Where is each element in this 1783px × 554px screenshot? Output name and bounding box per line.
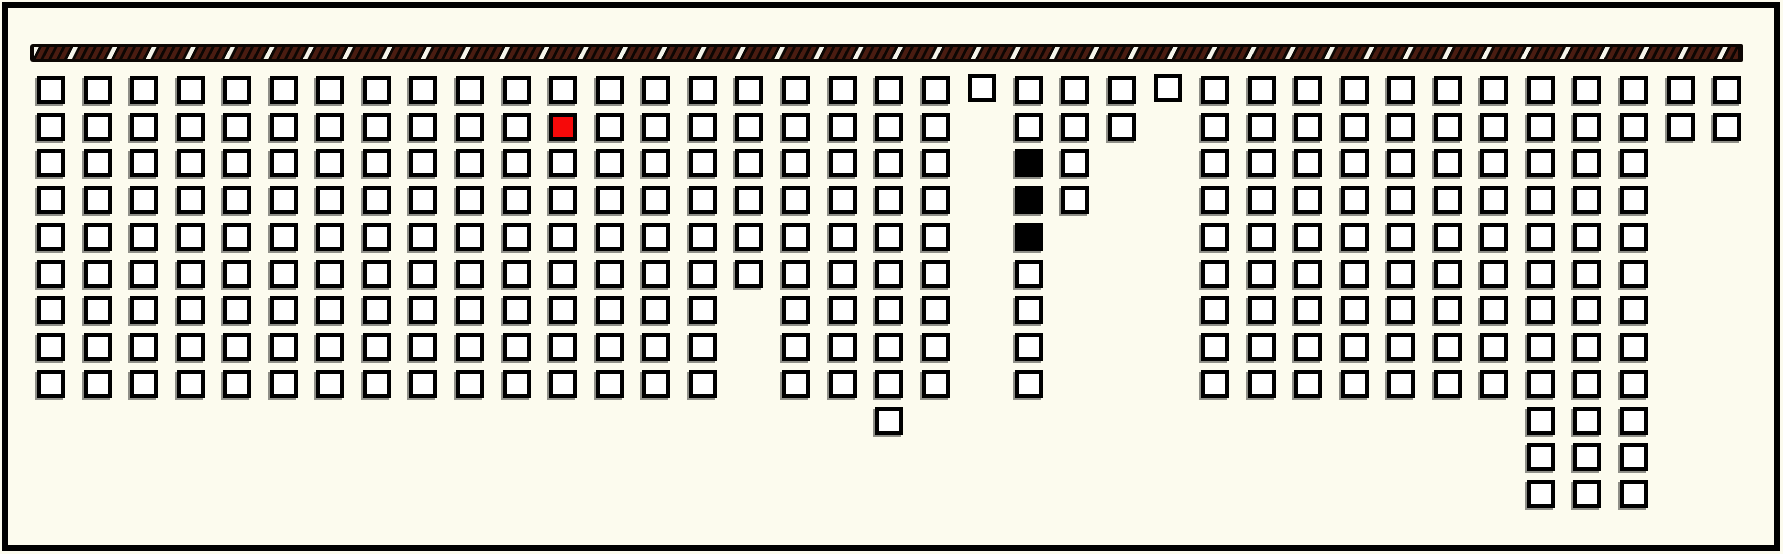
seat-available[interactable] [1620,186,1648,214]
seat-available[interactable] [37,370,65,398]
seat-available[interactable] [130,260,158,288]
seat-available[interactable] [503,260,531,288]
seat-available[interactable] [223,149,251,177]
seat-available[interactable] [1201,223,1229,251]
seat-available[interactable] [1620,296,1648,324]
seat-available[interactable] [84,260,112,288]
seat-available[interactable] [596,370,624,398]
seat-available[interactable] [1527,260,1555,288]
seat-available[interactable] [223,76,251,104]
seat-available[interactable] [782,113,810,141]
seat-available[interactable] [503,76,531,104]
seat-available[interactable] [596,149,624,177]
seat-available[interactable] [596,223,624,251]
seat-available[interactable] [875,296,903,324]
seat-available[interactable] [1341,260,1369,288]
seat-available[interactable] [549,260,577,288]
seat-available[interactable] [1201,333,1229,361]
seat-available[interactable] [223,113,251,141]
seat-available[interactable] [270,296,298,324]
seat-available[interactable] [130,370,158,398]
seat-available[interactable] [1480,260,1508,288]
seat-available[interactable] [1387,76,1415,104]
seat-available[interactable] [177,333,205,361]
seat-available[interactable] [1294,296,1322,324]
seat-available[interactable] [829,333,857,361]
seat-available[interactable] [1480,296,1508,324]
seat-available[interactable] [1620,223,1648,251]
seat-available[interactable] [223,186,251,214]
seat-available[interactable] [875,76,903,104]
seat-available[interactable] [37,333,65,361]
seat-available[interactable] [1061,186,1089,214]
seat-available[interactable] [37,113,65,141]
seat-available[interactable] [363,149,391,177]
seat-available[interactable] [1387,113,1415,141]
seat-available[interactable] [130,223,158,251]
seat-available[interactable] [1387,296,1415,324]
seat-available[interactable] [1620,370,1648,398]
seat-available[interactable] [1527,407,1555,435]
seat-available[interactable] [1248,370,1276,398]
seat-available[interactable] [1527,370,1555,398]
seat-available[interactable] [130,113,158,141]
seat-available[interactable] [1294,186,1322,214]
seat-available[interactable] [1713,76,1741,104]
seat-available[interactable] [223,333,251,361]
seat-available[interactable] [1294,149,1322,177]
seat-available[interactable] [1061,149,1089,177]
seat-available[interactable] [782,149,810,177]
seat-available[interactable] [316,149,344,177]
seat-available[interactable] [1294,223,1322,251]
seat-available[interactable] [37,186,65,214]
seat-available[interactable] [1341,370,1369,398]
seat-available[interactable] [1248,296,1276,324]
seat-available[interactable] [1248,149,1276,177]
seat-available[interactable] [642,223,670,251]
seat-available[interactable] [1248,113,1276,141]
seat-available[interactable] [316,223,344,251]
seat-available[interactable] [1248,333,1276,361]
seat-available[interactable] [1480,113,1508,141]
seat-available[interactable] [177,149,205,177]
seat-available[interactable] [1620,480,1648,508]
seat-available[interactable] [503,186,531,214]
seat-available[interactable] [409,333,437,361]
seat-available[interactable] [1620,149,1648,177]
seat-available[interactable] [922,76,950,104]
seat-available[interactable] [1527,149,1555,177]
seat-available[interactable] [829,370,857,398]
seat-available[interactable] [875,333,903,361]
seat-available[interactable] [1527,443,1555,471]
seat-selected[interactable] [549,113,577,141]
seat-available[interactable] [829,113,857,141]
seat-available[interactable] [875,186,903,214]
seat-available[interactable] [270,149,298,177]
seat-available[interactable] [456,113,484,141]
seat-available[interactable] [782,370,810,398]
seat-available[interactable] [1201,76,1229,104]
seat-available[interactable] [223,370,251,398]
seat-available[interactable] [1480,186,1508,214]
seat-available[interactable] [968,74,996,102]
seat-available[interactable] [1480,223,1508,251]
seat-map-canvas [0,0,1783,554]
seat-available[interactable] [223,223,251,251]
seat-available[interactable] [1480,76,1508,104]
seat-available[interactable] [1480,370,1508,398]
seat-available[interactable] [549,370,577,398]
seat-available[interactable] [84,370,112,398]
seat-available[interactable] [37,76,65,104]
seat-available[interactable] [875,407,903,435]
seat-available[interactable] [1387,186,1415,214]
seat-available[interactable] [363,186,391,214]
seat-available[interactable] [1201,370,1229,398]
seat-available[interactable] [177,186,205,214]
seat-available[interactable] [270,370,298,398]
seat-available[interactable] [829,260,857,288]
seat-available[interactable] [1620,260,1648,288]
seat-available[interactable] [270,223,298,251]
seat-available[interactable] [922,186,950,214]
seat-available[interactable] [1573,260,1601,288]
seat-available[interactable] [270,76,298,104]
seat-available[interactable] [1434,76,1462,104]
seat-available[interactable] [177,76,205,104]
seat-available[interactable] [735,113,763,141]
seat-available[interactable] [549,149,577,177]
seat-occupied[interactable] [1015,149,1043,177]
seat-available[interactable] [456,149,484,177]
seat-available[interactable] [1434,149,1462,177]
seat-available[interactable] [223,260,251,288]
seat-available[interactable] [1201,149,1229,177]
seat-available[interactable] [503,113,531,141]
seat-available[interactable] [177,296,205,324]
seat-available[interactable] [456,333,484,361]
seat-available[interactable] [37,149,65,177]
seat-available[interactable] [409,76,437,104]
seat-available[interactable] [1387,333,1415,361]
seat-available[interactable] [316,260,344,288]
seat-available[interactable] [875,370,903,398]
seat-available[interactable] [177,113,205,141]
seat-available[interactable] [1434,333,1462,361]
seat-available[interactable] [689,370,717,398]
seat-available[interactable] [1341,333,1369,361]
seat-available[interactable] [130,76,158,104]
seat-available[interactable] [549,296,577,324]
seat-available[interactable] [596,186,624,214]
seat-available[interactable] [689,76,717,104]
seat-available[interactable] [1387,149,1415,177]
seat-available[interactable] [829,149,857,177]
seat-available[interactable] [1341,76,1369,104]
seat-available[interactable] [642,260,670,288]
seat-available[interactable] [363,223,391,251]
seat-available[interactable] [782,186,810,214]
seat-available[interactable] [1527,480,1555,508]
seat-available[interactable] [316,76,344,104]
seat-available[interactable] [1573,186,1601,214]
seat-available[interactable] [1573,370,1601,398]
seat-available[interactable] [1620,113,1648,141]
seat-available[interactable] [922,333,950,361]
seat-available[interactable] [922,370,950,398]
seat-available[interactable] [735,223,763,251]
seat-available[interactable] [689,260,717,288]
seat-available[interactable] [1620,76,1648,104]
seat-available[interactable] [735,186,763,214]
seat-available[interactable] [1015,260,1043,288]
seat-available[interactable] [1341,223,1369,251]
seat-available[interactable] [1620,333,1648,361]
seat-available[interactable] [1667,113,1695,141]
seat-available[interactable] [1573,296,1601,324]
seat-available[interactable] [84,186,112,214]
seat-available[interactable] [1201,113,1229,141]
seat-available[interactable] [409,260,437,288]
seat-available[interactable] [782,223,810,251]
seat-available[interactable] [1667,76,1695,104]
seat-available[interactable] [316,370,344,398]
seat-available[interactable] [130,149,158,177]
seat-available[interactable] [642,370,670,398]
seat-available[interactable] [1434,186,1462,214]
seat-available[interactable] [363,296,391,324]
seat-available[interactable] [409,296,437,324]
seat-available[interactable] [1015,296,1043,324]
seat-available[interactable] [84,296,112,324]
seat-available[interactable] [316,113,344,141]
seat-available[interactable] [503,370,531,398]
seat-available[interactable] [596,113,624,141]
seat-available[interactable] [875,149,903,177]
seat-available[interactable] [1573,407,1601,435]
seat-available[interactable] [1341,113,1369,141]
seat-available[interactable] [84,223,112,251]
seat-available[interactable] [1573,333,1601,361]
seat-available[interactable] [456,370,484,398]
seat-available[interactable] [130,333,158,361]
seat-available[interactable] [1573,443,1601,471]
seat-available[interactable] [1620,407,1648,435]
seat-available[interactable] [689,296,717,324]
seat-available[interactable] [596,296,624,324]
seat-available[interactable] [1015,370,1043,398]
seat-available[interactable] [922,223,950,251]
seat-available[interactable] [689,223,717,251]
seat-available[interactable] [1201,186,1229,214]
seat-occupied[interactable] [1015,223,1043,251]
seat-available[interactable] [642,296,670,324]
seat-available[interactable] [1434,370,1462,398]
seat-available[interactable] [503,333,531,361]
stage-hazard-bar [30,44,1743,62]
seat-available[interactable] [642,76,670,104]
seat-available[interactable] [1527,296,1555,324]
seat-available[interactable] [689,113,717,141]
seat-available[interactable] [922,260,950,288]
seat-available[interactable] [456,260,484,288]
seat-available[interactable] [1387,223,1415,251]
seat-available[interactable] [1201,260,1229,288]
seat-available[interactable] [270,333,298,361]
seat-available[interactable] [549,333,577,361]
seat-available[interactable] [782,260,810,288]
seat-available[interactable] [1015,333,1043,361]
seat-available[interactable] [596,260,624,288]
seat-available[interactable] [642,186,670,214]
seat-available[interactable] [922,113,950,141]
seat-available[interactable] [130,296,158,324]
seat-available[interactable] [1294,370,1322,398]
seat-available[interactable] [1108,76,1136,104]
seat-available[interactable] [782,76,810,104]
seat-available[interactable] [1434,260,1462,288]
seat-available[interactable] [1527,113,1555,141]
seat-available[interactable] [922,296,950,324]
seat-available[interactable] [316,333,344,361]
seat-available[interactable] [642,113,670,141]
seat-available[interactable] [596,333,624,361]
seat-available[interactable] [1434,223,1462,251]
seat-available[interactable] [782,296,810,324]
seat-available[interactable] [456,76,484,104]
seat-available[interactable] [177,223,205,251]
seat-available[interactable] [1713,113,1741,141]
seat-available[interactable] [363,370,391,398]
seat-available[interactable] [363,76,391,104]
seat-available[interactable] [84,333,112,361]
seat-available[interactable] [1434,296,1462,324]
seat-available[interactable] [1527,186,1555,214]
seat-available[interactable] [456,296,484,324]
seat-available[interactable] [1248,223,1276,251]
seat-available[interactable] [1061,76,1089,104]
seat-available[interactable] [1527,223,1555,251]
seat-available[interactable] [875,260,903,288]
seat-available[interactable] [1061,113,1089,141]
seat-available[interactable] [84,76,112,104]
seat-available[interactable] [875,113,903,141]
seat-available[interactable] [409,113,437,141]
seat-available[interactable] [1341,296,1369,324]
seat-available[interactable] [270,186,298,214]
seat-available[interactable] [316,296,344,324]
seat-available[interactable] [409,149,437,177]
seat-available[interactable] [1573,76,1601,104]
seat-available[interactable] [270,260,298,288]
seat-available[interactable] [37,260,65,288]
seat-available[interactable] [782,333,810,361]
seat-available[interactable] [363,260,391,288]
seat-available[interactable] [363,333,391,361]
seat-available[interactable] [642,149,670,177]
seat-available[interactable] [503,223,531,251]
seat-available[interactable] [1294,333,1322,361]
seat-available[interactable] [177,370,205,398]
seat-available[interactable] [549,186,577,214]
seat-available[interactable] [1527,76,1555,104]
seat-available[interactable] [1387,370,1415,398]
seat-available[interactable] [1573,480,1601,508]
seat-available[interactable] [875,223,903,251]
seat-available[interactable] [829,76,857,104]
seat-available[interactable] [689,333,717,361]
seat-available[interactable] [1480,333,1508,361]
seat-available[interactable] [409,186,437,214]
seat-available[interactable] [735,260,763,288]
seat-available[interactable] [1434,113,1462,141]
seat-occupied[interactable] [1015,186,1043,214]
seat-available[interactable] [1248,186,1276,214]
seat-available[interactable] [37,296,65,324]
seat-available[interactable] [549,223,577,251]
seat-available[interactable] [177,260,205,288]
seat-available[interactable] [1573,113,1601,141]
seat-available[interactable] [642,333,670,361]
seat-available[interactable] [456,186,484,214]
seat-available[interactable] [596,76,624,104]
seat-available[interactable] [1294,260,1322,288]
seat-available[interactable] [1248,76,1276,104]
seat-available[interactable] [1341,186,1369,214]
seat-available[interactable] [1480,149,1508,177]
seat-available[interactable] [1015,113,1043,141]
seat-available[interactable] [829,296,857,324]
seat-available[interactable] [1341,149,1369,177]
seat-available[interactable] [549,76,577,104]
seat-available[interactable] [735,149,763,177]
seat-available[interactable] [689,149,717,177]
seat-available[interactable] [270,113,298,141]
seat-available[interactable] [1154,74,1182,102]
seat-available[interactable] [1387,260,1415,288]
seat-available[interactable] [409,223,437,251]
seat-available[interactable] [1248,260,1276,288]
seat-available[interactable] [829,186,857,214]
seat-available[interactable] [1294,76,1322,104]
seat-available[interactable] [503,296,531,324]
seat-available[interactable] [1294,113,1322,141]
seat-available[interactable] [84,113,112,141]
seat-available[interactable] [1108,113,1136,141]
seat-available[interactable] [503,149,531,177]
seat-available[interactable] [1573,223,1601,251]
seat-available[interactable] [1573,149,1601,177]
seat-available[interactable] [223,296,251,324]
seat-available[interactable] [829,223,857,251]
seat-available[interactable] [1015,76,1043,104]
seat-available[interactable] [1201,296,1229,324]
seat-available[interactable] [84,149,112,177]
seat-available[interactable] [363,113,391,141]
seat-available[interactable] [456,223,484,251]
seat-available[interactable] [409,370,437,398]
seat-available[interactable] [1620,443,1648,471]
seat-available[interactable] [1527,333,1555,361]
seat-available[interactable] [922,149,950,177]
seat-available[interactable] [37,223,65,251]
seat-available[interactable] [689,186,717,214]
seat-available[interactable] [735,76,763,104]
seat-available[interactable] [130,186,158,214]
seat-available[interactable] [316,186,344,214]
